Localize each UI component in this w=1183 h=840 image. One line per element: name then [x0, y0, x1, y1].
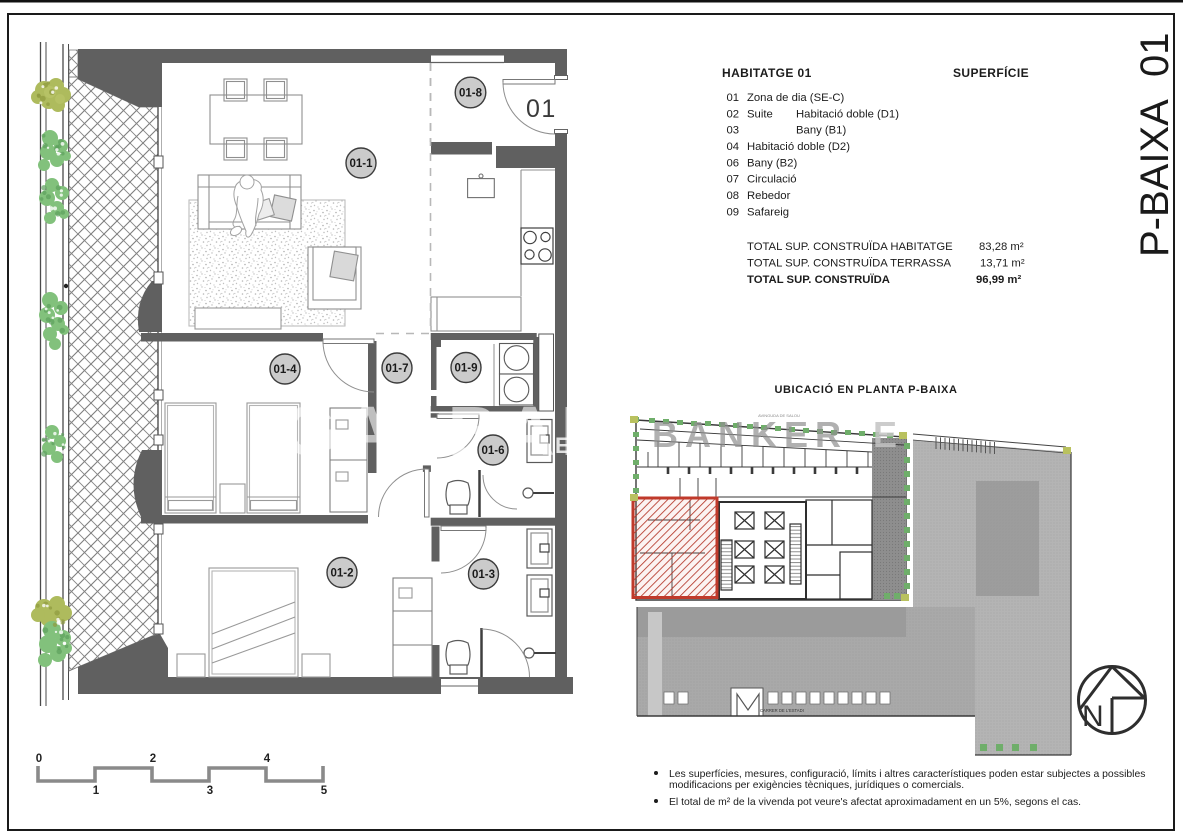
svg-text:01-8: 01-8 — [459, 88, 483, 100]
svg-text:03: 03 — [727, 125, 740, 137]
svg-text:5: 5 — [321, 785, 328, 797]
svg-text:Bany (B2): Bany (B2) — [747, 157, 797, 169]
svg-text:SUPERFÍCIE: SUPERFÍCIE — [953, 65, 1029, 80]
svg-text:04: 04 — [727, 141, 740, 153]
svg-text:83,28 m²: 83,28 m² — [979, 241, 1024, 253]
svg-text:0: 0 — [36, 753, 42, 765]
svg-text:Les superfícies, mesures, conf: Les superfícies, mesures, configuració, … — [669, 769, 1145, 780]
svg-text:TOTAL SUP. CONSTRUÏDA TERRASSA: TOTAL SUP. CONSTRUÏDA TERRASSA — [747, 257, 951, 269]
svg-text:01-9: 01-9 — [454, 363, 477, 375]
svg-text:E: E — [555, 433, 570, 458]
svg-text:El total de m² de la vivenda p: El total de m² de la vivenda pot veure's… — [669, 797, 1081, 808]
svg-text:TOTAL SUP. CONSTRUÏDA HABITATG: TOTAL SUP. CONSTRUÏDA HABITATGE — [747, 241, 953, 253]
svg-text:Zona de dia (SE-C): Zona de dia (SE-C) — [747, 92, 845, 104]
svg-text:CARRER DE L'ESTADI: CARRER DE L'ESTADI — [760, 708, 804, 713]
svg-text:4: 4 — [264, 753, 271, 765]
svg-text:06: 06 — [727, 157, 740, 169]
svg-text:01: 01 — [727, 92, 740, 104]
svg-text:N: N — [1082, 700, 1104, 733]
svg-text:01-2: 01-2 — [330, 568, 353, 580]
svg-text:P-BAIXA 01: P-BAIXA 01 — [1133, 32, 1177, 257]
svg-text:02: 02 — [727, 108, 740, 120]
svg-text:09: 09 — [727, 206, 740, 218]
svg-text:01-3: 01-3 — [472, 569, 495, 581]
svg-text:Bany (B1): Bany (B1) — [796, 125, 846, 137]
svg-text:Circulació: Circulació — [747, 174, 797, 186]
svg-text:01-1: 01-1 — [349, 158, 373, 170]
svg-text:Safareig: Safareig — [747, 206, 789, 218]
svg-text:Suite: Suite — [747, 108, 773, 120]
svg-text:2: 2 — [150, 753, 156, 765]
svg-text:07: 07 — [727, 174, 740, 186]
svg-text:BANKER: BANKER — [652, 414, 848, 455]
svg-text:3: 3 — [207, 785, 213, 797]
svg-text:08: 08 — [727, 190, 740, 202]
svg-text:modificacions per exigències t: modificacions per exigències tècniques, … — [669, 780, 964, 791]
svg-text:HABITATGE 01: HABITATGE 01 — [722, 66, 812, 80]
svg-text:E: E — [873, 414, 904, 455]
svg-text:01: 01 — [526, 95, 557, 123]
svg-text:GALBAN: GALBAN — [282, 392, 617, 470]
svg-text:UBICACIÓ EN PLANTA P-BAIXA: UBICACIÓ EN PLANTA P-BAIXA — [774, 383, 957, 396]
svg-text:Rebedor: Rebedor — [747, 190, 791, 202]
svg-text:13,71 m²: 13,71 m² — [980, 257, 1025, 269]
svg-text:1: 1 — [93, 785, 100, 797]
svg-text:01-4: 01-4 — [273, 364, 297, 376]
svg-text:01-6: 01-6 — [481, 445, 504, 457]
svg-text:TOTAL SUP. CONSTRUÏDA: TOTAL SUP. CONSTRUÏDA — [747, 273, 890, 286]
svg-text:01-7: 01-7 — [385, 363, 408, 375]
svg-text:Habitació doble (D1): Habitació doble (D1) — [796, 108, 899, 120]
svg-text:96,99 m²: 96,99 m² — [976, 274, 1021, 286]
svg-text:Habitació doble (D2): Habitació doble (D2) — [747, 141, 850, 153]
